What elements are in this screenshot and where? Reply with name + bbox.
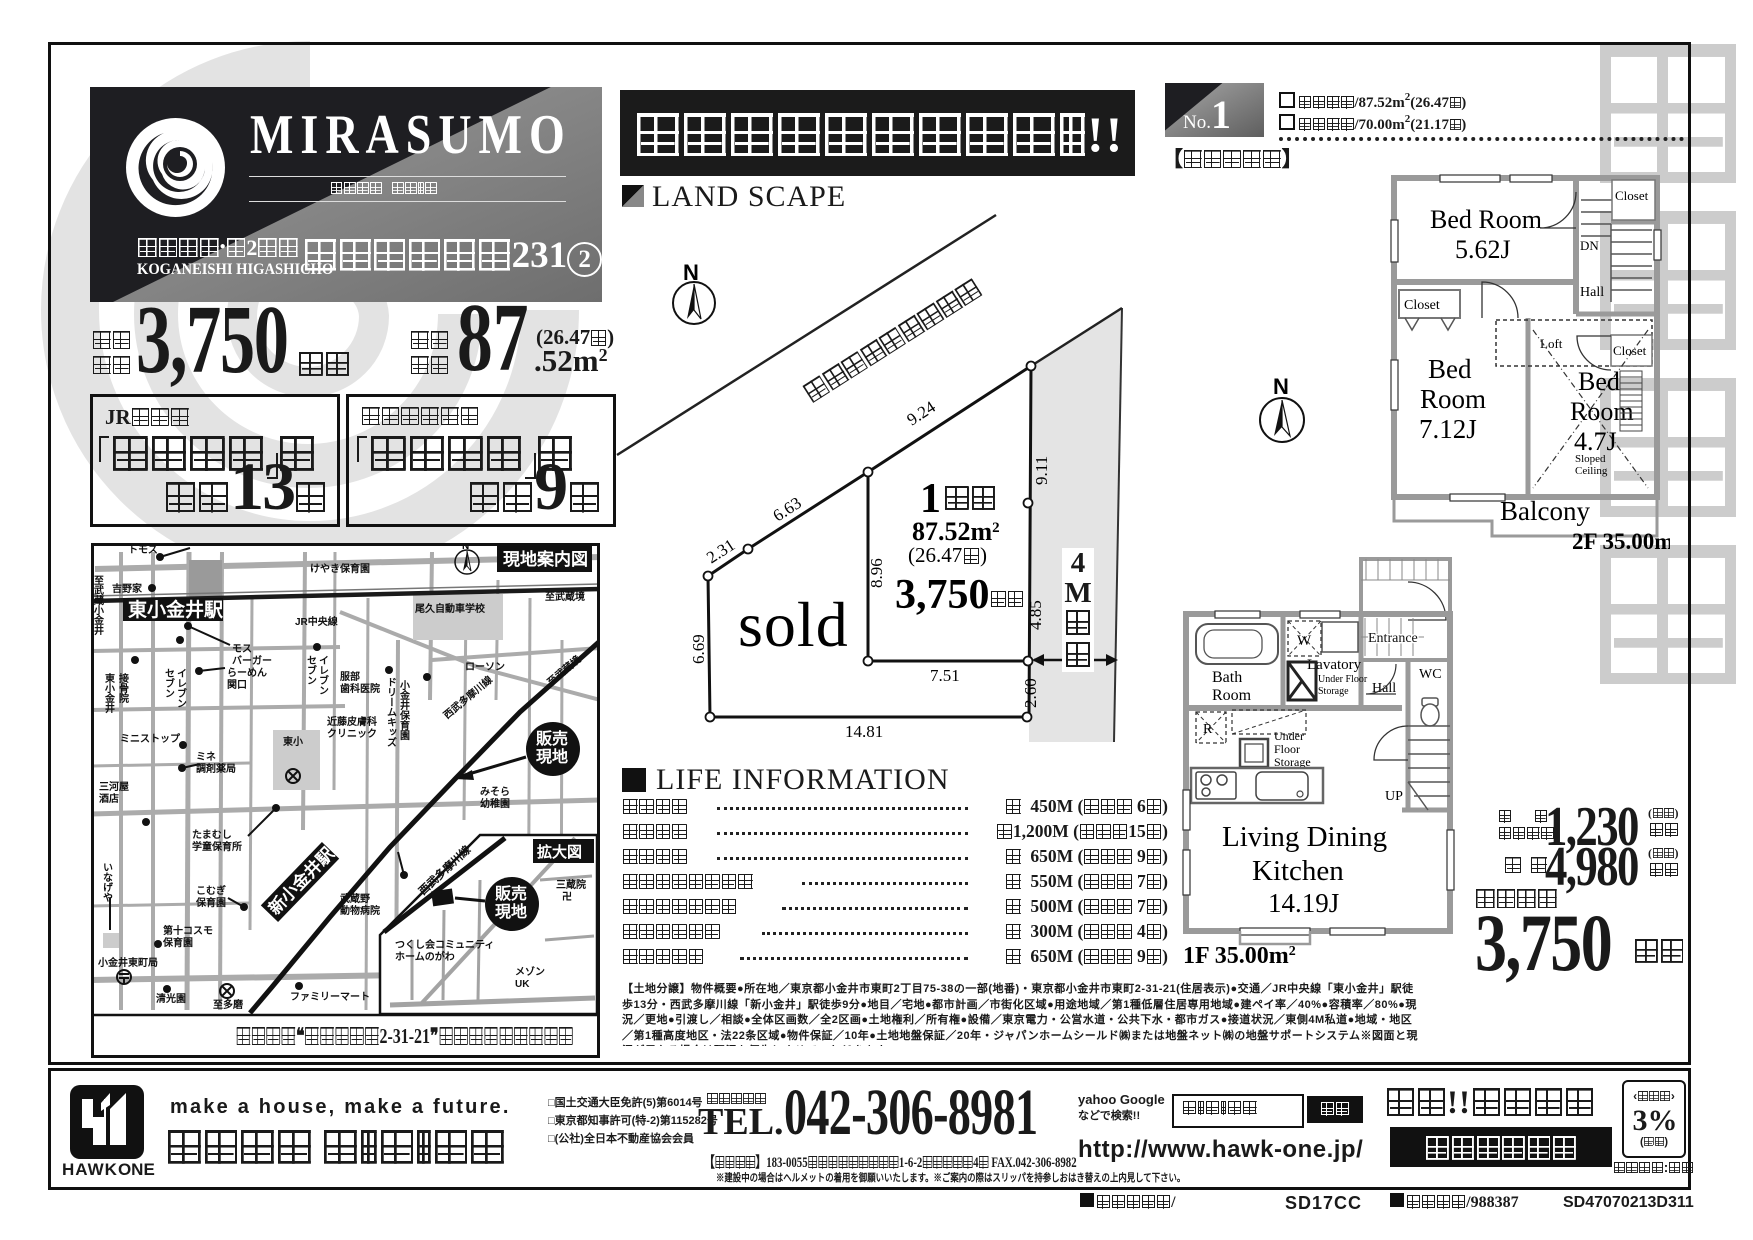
svg-text:Sloped: Sloped (1575, 453, 1606, 465)
svg-text:87.52m2: 87.52m2 (912, 517, 1000, 546)
svg-text:N: N (1273, 378, 1289, 399)
svg-text:9.24: 9.24 (903, 397, 939, 429)
svg-text:現地: 現地 (495, 902, 527, 921)
svg-text:接骨院: 接骨院 (117, 672, 129, 704)
svg-text:イレブン: イレブン (317, 655, 329, 695)
svg-text:幼稚園: 幼稚園 (480, 797, 510, 810)
svg-text:吉野家: 吉野家 (112, 582, 143, 595)
svg-text:清光園: 清光園 (156, 992, 186, 1005)
svg-text:JR中央線: JR中央線 (295, 615, 338, 628)
svg-text:保育園: 保育園 (195, 896, 226, 909)
svg-text:調剤薬局: 調剤薬局 (196, 762, 236, 775)
svg-text:ローソン: ローソン (465, 662, 505, 673)
svg-text:いなげや: いなげや (101, 862, 113, 902)
svg-text:9.11: 9.11 (1032, 456, 1051, 485)
svg-text:Closet: Closet (1615, 188, 1649, 203)
svg-text:2F 35.00m2: 2F 35.00m2 (1572, 529, 1670, 554)
svg-text:UK: UK (515, 979, 530, 990)
svg-text:): ) (980, 543, 987, 567)
svg-text:Entrance: Entrance (1368, 631, 1418, 646)
svg-text:5.62J: 5.62J (1455, 235, 1511, 264)
svg-text:3,750: 3,750 (895, 572, 990, 618)
svg-text:バーガー: バーガー (232, 654, 272, 667)
svg-text:UP: UP (1385, 789, 1403, 804)
svg-text:東小: 東小 (283, 735, 303, 748)
svg-text:拡大図: 拡大図 (537, 843, 582, 861)
svg-text:Room: Room (1212, 687, 1252, 704)
svg-text:三蔵院: 三蔵院 (556, 878, 586, 891)
svg-text:武蔵野: 武蔵野 (340, 892, 370, 905)
svg-text:らーめん: らーめん (227, 667, 267, 679)
svg-text:三河屋: 三河屋 (99, 781, 129, 793)
svg-text:Hall: Hall (1580, 285, 1604, 300)
svg-text:みそら: みそら (480, 786, 510, 798)
svg-text:動物病院: 動物病院 (340, 904, 380, 917)
svg-text:こむぎ: こむぎ (196, 884, 226, 897)
svg-text:けやき保育園: けやき保育園 (310, 562, 370, 575)
svg-text:東小金井駅: 東小金井駅 (128, 598, 224, 621)
svg-text:服部: 服部 (340, 670, 360, 683)
svg-text:N: N (683, 260, 699, 285)
svg-text:DN: DN (1580, 238, 1599, 253)
svg-text:酒店: 酒店 (99, 792, 119, 805)
svg-text:小金井東町局: 小金井東町局 (97, 956, 158, 969)
svg-text:Kitchen: Kitchen (1252, 855, 1344, 887)
svg-text:6.69: 6.69 (689, 634, 708, 664)
svg-text:Closet: Closet (1404, 298, 1440, 313)
svg-text:WC: WC (1419, 667, 1442, 682)
svg-text:現地: 現地 (536, 747, 568, 766)
svg-text:モス: モス (232, 643, 252, 655)
svg-text:歯科医院: 歯科医院 (340, 682, 380, 695)
svg-text:Bed: Bed (1578, 367, 1620, 396)
svg-text:メゾン: メゾン (515, 965, 545, 978)
svg-text:Bed: Bed (1428, 354, 1472, 384)
svg-text:Bath: Bath (1212, 669, 1242, 686)
svg-text:つくし会コミュニティ: つくし会コミュニティ (395, 938, 494, 951)
svg-text:Storage: Storage (1318, 686, 1349, 697)
svg-text:sold: sold (738, 589, 849, 660)
svg-text:1F 35.00m2: 1F 35.00m2 (1183, 943, 1296, 969)
svg-text:セブン: セブン (163, 668, 175, 698)
svg-text:至多磨: 至多磨 (213, 998, 244, 1011)
svg-text:ファミリーマート: ファミリーマート (290, 991, 370, 1003)
svg-text:Bed Room: Bed Room (1430, 205, 1542, 234)
svg-text:Floor: Floor (1274, 742, 1300, 756)
svg-text:14.81: 14.81 (845, 722, 883, 741)
svg-text:販売: 販売 (495, 884, 527, 903)
svg-text:2.60: 2.60 (1021, 678, 1040, 708)
svg-text:ミネ: ミネ (196, 751, 216, 763)
svg-text:W: W (1297, 633, 1312, 649)
svg-text:至武蔵境: 至武蔵境 (545, 590, 585, 603)
svg-text:4.85: 4.85 (1026, 600, 1045, 630)
svg-text:販売: 販売 (536, 729, 568, 748)
svg-text:近藤皮膚科: 近藤皮膚科 (327, 715, 377, 728)
svg-text:ドリームキッズ: ドリームキッズ (385, 677, 397, 747)
svg-text:ミニストップ: ミニストップ (120, 732, 181, 745)
svg-text:学童保育所: 学童保育所 (192, 840, 242, 853)
svg-text:Living Dining: Living Dining (1222, 821, 1387, 853)
svg-text:7.51: 7.51 (930, 666, 960, 685)
svg-text:尾久自動車学校: 尾久自動車学校 (415, 602, 486, 615)
svg-text:Room: Room (1420, 384, 1486, 414)
svg-text:14.19J: 14.19J (1268, 888, 1339, 918)
svg-text:卍: 卍 (562, 891, 572, 903)
svg-text:8.96: 8.96 (867, 558, 886, 588)
svg-text:7.12J: 7.12J (1419, 414, 1477, 444)
svg-text:関口: 関口 (227, 679, 247, 691)
svg-text:Under: Under (1274, 729, 1304, 743)
svg-text:クリニック: クリニック (327, 728, 377, 740)
svg-text:4.7J: 4.7J (1574, 427, 1617, 456)
svg-text:イレブン: イレブン (175, 668, 187, 708)
svg-text:Balcony: Balcony (1500, 496, 1590, 526)
svg-text:保育園: 保育園 (162, 936, 193, 949)
svg-text:たまむし: たまむし (192, 829, 232, 841)
svg-text:ホームのがわ: ホームのがわ (395, 950, 455, 963)
svg-text:現地案内図: 現地案内図 (503, 549, 588, 569)
svg-text:(26.47: (26.47 (908, 543, 962, 567)
svg-text:セブン: セブン (305, 655, 317, 685)
svg-text:1: 1 (920, 476, 941, 522)
svg-text:Ceiling: Ceiling (1575, 465, 1608, 477)
svg-text:第十コスモ: 第十コスモ (163, 924, 213, 937)
svg-text:R: R (1203, 722, 1213, 737)
svg-text:Under Floor: Under Floor (1318, 674, 1368, 685)
